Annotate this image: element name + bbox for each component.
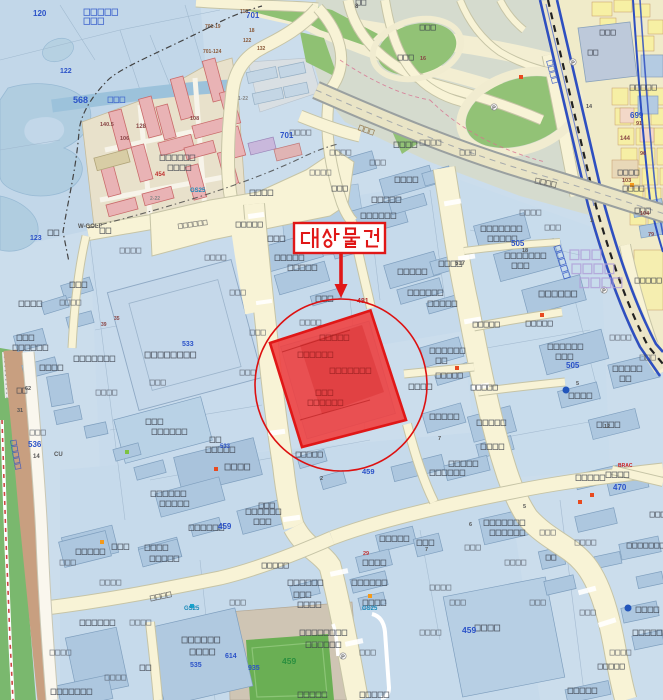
svg-text:454: 454 — [155, 172, 166, 178]
svg-text:6: 6 — [469, 522, 472, 528]
svg-text:GS25: GS25 — [190, 188, 206, 194]
svg-text:14: 14 — [33, 454, 40, 460]
svg-text:P: P — [571, 60, 575, 66]
svg-text:459: 459 — [462, 625, 476, 635]
svg-text:7: 7 — [425, 547, 428, 553]
svg-text:122: 122 — [243, 38, 252, 44]
svg-text:2-22: 2-22 — [150, 196, 160, 202]
svg-text:GS25: GS25 — [362, 606, 378, 612]
svg-text:62: 62 — [25, 386, 31, 392]
svg-text:701: 701 — [246, 11, 260, 20]
svg-text:123: 123 — [30, 235, 42, 242]
svg-text:128: 128 — [136, 124, 147, 130]
svg-text:18: 18 — [522, 248, 528, 254]
svg-text:79: 79 — [648, 232, 654, 238]
svg-text:106: 106 — [120, 136, 129, 142]
svg-text:122: 122 — [60, 68, 72, 75]
svg-text:935: 935 — [248, 665, 260, 672]
svg-text:132: 132 — [257, 46, 266, 52]
svg-text:BRAC: BRAC — [618, 463, 633, 469]
svg-text:470: 470 — [613, 483, 627, 492]
svg-text:533: 533 — [220, 444, 231, 450]
svg-text:29: 29 — [363, 551, 369, 557]
svg-text:120: 120 — [33, 9, 47, 18]
svg-text:35: 35 — [114, 316, 120, 322]
svg-text:568: 568 — [73, 95, 88, 105]
svg-text:505: 505 — [511, 239, 525, 248]
svg-text:517: 517 — [455, 261, 466, 267]
svg-text:108: 108 — [190, 116, 199, 122]
svg-text:18: 18 — [249, 28, 255, 34]
svg-text:5: 5 — [523, 504, 526, 510]
svg-text:1-22: 1-22 — [238, 96, 248, 102]
svg-text:699: 699 — [630, 111, 644, 120]
svg-text:533: 533 — [182, 341, 194, 348]
svg-text:P: P — [341, 654, 345, 660]
svg-text:113: 113 — [240, 9, 248, 15]
svg-text:39: 39 — [101, 322, 107, 328]
svg-text:91: 91 — [636, 121, 642, 127]
svg-text:12: 12 — [604, 424, 610, 430]
svg-text:5: 5 — [576, 381, 579, 387]
svg-text:2: 2 — [320, 476, 323, 482]
svg-text:14: 14 — [586, 104, 593, 110]
svg-text:614: 614 — [225, 653, 237, 660]
svg-text:CU: CU — [54, 452, 63, 458]
svg-text:535: 535 — [190, 662, 202, 669]
svg-text:140.5: 140.5 — [100, 122, 114, 128]
svg-text:P: P — [602, 288, 606, 294]
svg-text:459: 459 — [282, 656, 296, 666]
svg-text:505: 505 — [566, 361, 580, 370]
svg-text:536: 536 — [28, 440, 42, 449]
svg-text:701-124: 701-124 — [203, 49, 222, 55]
svg-text:GS25: GS25 — [184, 606, 200, 612]
svg-text:7: 7 — [438, 436, 441, 442]
svg-text:96: 96 — [640, 151, 646, 157]
svg-text:P: P — [492, 105, 496, 111]
svg-text:459: 459 — [218, 522, 232, 531]
svg-text:104: 104 — [640, 211, 650, 217]
svg-text:16: 16 — [420, 56, 426, 62]
svg-text:144: 144 — [620, 136, 631, 142]
svg-text:103: 103 — [622, 178, 631, 184]
svg-text:31: 31 — [17, 408, 23, 414]
